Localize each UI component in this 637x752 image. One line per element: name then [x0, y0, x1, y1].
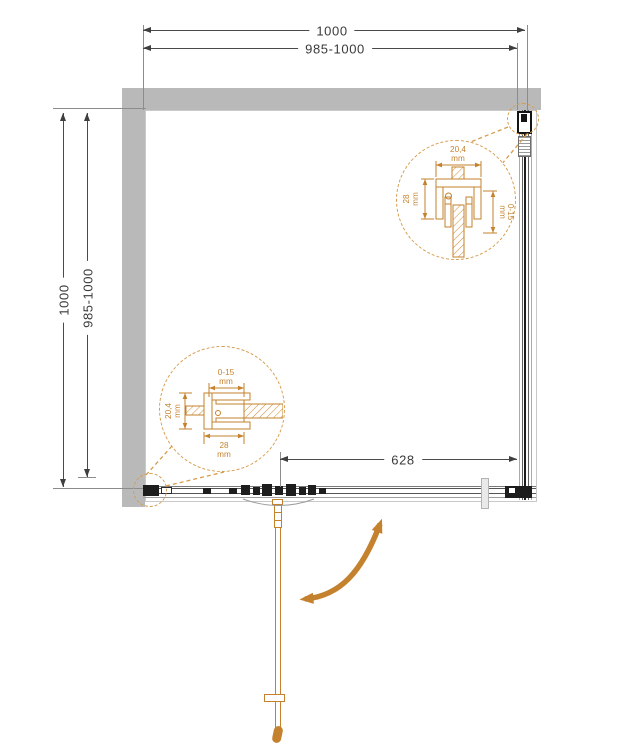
rail-profile-segment	[229, 488, 237, 494]
dim-arrow-icon	[509, 45, 517, 51]
dim-arrow-icon	[84, 469, 90, 477]
detail-dim-label: mm	[219, 377, 233, 386]
shower-enclosure-technical-drawing: 1000 985-1000 1000 985-1000 628	[0, 0, 637, 752]
corner-connector-detail	[509, 488, 515, 493]
dim-arrow-icon	[143, 27, 151, 33]
wall-profile-body	[518, 136, 531, 157]
wall-top	[122, 88, 541, 110]
dim-arrow-icon	[509, 456, 517, 462]
dim-arrow-icon	[84, 113, 90, 121]
door-hinge-line	[274, 512, 282, 513]
door-hinge-line	[274, 520, 282, 521]
dim-width-outer-label: 1000	[309, 25, 354, 38]
detail-dim-label: 28	[402, 194, 411, 204]
door-hinge-arm	[274, 505, 282, 528]
detail-dim-label: mm	[173, 404, 182, 418]
detail-dim-label: mm	[451, 154, 465, 163]
glass-panel-line	[524, 110, 526, 500]
hinge-part	[299, 487, 306, 495]
wall-left	[122, 88, 145, 507]
dim-arrow-icon	[517, 27, 525, 33]
extension-line	[143, 25, 144, 110]
glass-panel-line	[531, 110, 532, 500]
extension-line	[53, 488, 143, 489]
bottom-rail-line	[143, 486, 536, 487]
door-handle	[264, 694, 285, 702]
extension-line	[527, 25, 528, 111]
hinge-part	[262, 484, 272, 496]
bottom-rail-line	[143, 497, 536, 498]
hinge-part	[308, 485, 316, 495]
detail-dim-label: mm	[498, 205, 507, 219]
detail-drawing-top-right: 20,4 mm 28 mm 0-15 mm	[397, 141, 514, 258]
detail-dim-label: 20,4	[164, 403, 173, 419]
rail-profile-segment	[203, 488, 211, 494]
dim-arrow-icon	[60, 113, 66, 121]
detail-view-bottom-left: 0-15 mm 20,4 mm 28 mm	[159, 346, 285, 472]
detail-dim-label: 28	[219, 441, 229, 450]
detail-dim-label: 0-15	[218, 368, 235, 377]
hinge-part	[253, 487, 260, 495]
door-end-cap	[271, 725, 283, 743]
glass-panel-line	[519, 110, 520, 500]
detail-view-top-right: 20,4 mm 28 mm 0-15 mm	[396, 140, 516, 260]
detail-callout-circle-top-right	[507, 103, 539, 135]
dim-height-outer-label: 1000	[58, 277, 71, 322]
dim-arrow-icon	[143, 45, 151, 51]
hinge-part	[275, 486, 283, 495]
door-swing-arrow-icon	[305, 524, 380, 599]
extension-line	[517, 43, 518, 110]
extension-line	[78, 477, 96, 478]
hinge-part	[286, 484, 296, 496]
dim-height-inner-label: 985-1000	[82, 261, 95, 335]
glass-panel-line	[522, 110, 523, 500]
detail-dim-label: mm	[411, 192, 420, 206]
extension-line	[53, 108, 146, 109]
detail-drawing-bottom-left: 0-15 mm 20,4 mm 28 mm	[160, 347, 283, 470]
dim-width-inner-label: 985-1000	[298, 43, 372, 56]
detail-dim-label: 20,4	[450, 145, 466, 154]
rail-profile-segment	[319, 488, 326, 494]
detail-callout-circle-bottom-left	[133, 473, 167, 507]
bottom-rail-body	[143, 488, 536, 494]
dim-arrow-icon	[60, 479, 66, 487]
detail-dim-label: mm	[217, 450, 231, 459]
rail-support-bracket	[481, 478, 489, 509]
dim-door-opening-label: 628	[384, 454, 422, 467]
hinge-part	[241, 485, 250, 495]
glass-panel-line	[528, 110, 529, 500]
